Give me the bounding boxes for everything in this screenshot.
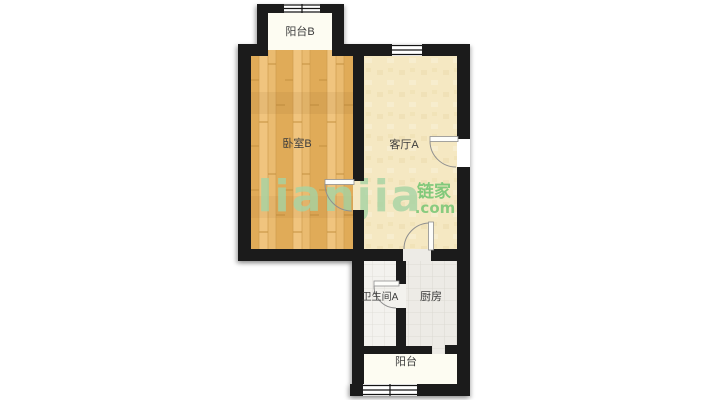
door-leaf bbox=[374, 281, 399, 286]
window-living-a bbox=[392, 44, 422, 56]
wall-segment bbox=[457, 167, 470, 396]
kitchen-floor bbox=[406, 261, 457, 354]
bathroom-a-floor bbox=[364, 261, 396, 346]
watermark-brand-text: lianjia bbox=[257, 171, 422, 222]
door-leaf bbox=[429, 222, 434, 250]
wall-segment bbox=[350, 384, 363, 396]
wall-segment bbox=[238, 44, 251, 261]
floorplan-canvas: lianjia 链家 .com bbox=[0, 0, 710, 400]
doorway-entry bbox=[457, 139, 470, 167]
bedroom-floor-shade bbox=[251, 92, 353, 114]
door-leaf bbox=[430, 137, 458, 142]
room-label-living-a: 客厅A bbox=[389, 137, 419, 151]
window-balcony-b bbox=[284, 4, 320, 13]
floorplan-svg: lianjia 链家 .com bbox=[0, 0, 710, 400]
room-label-bedroom-b: 卧室B bbox=[282, 136, 311, 150]
room-label-kitchen: 厨房 bbox=[420, 290, 442, 303]
window-balcony bbox=[363, 384, 417, 396]
wall-segment bbox=[257, 4, 284, 13]
wall-segment bbox=[422, 44, 458, 56]
door-leaf bbox=[325, 180, 354, 185]
wall-segment bbox=[352, 249, 364, 396]
wall-segment bbox=[320, 4, 344, 13]
wall-segment bbox=[445, 345, 457, 354]
watermark-tld-text: .com bbox=[415, 199, 456, 217]
room-label-balcony: 阳台 bbox=[395, 354, 417, 368]
wall-segment bbox=[431, 249, 470, 261]
wall-segment bbox=[457, 44, 470, 139]
wall-segment bbox=[238, 249, 403, 261]
room-label-bathroom-a: 卫生间A bbox=[362, 290, 399, 303]
floorplan: lianjia 链家 .com bbox=[238, 4, 470, 396]
wall-segment bbox=[396, 308, 406, 346]
wall-segment bbox=[353, 44, 364, 181]
wall-segment bbox=[396, 261, 406, 284]
room-label-balcony-b: 阳台B bbox=[285, 24, 314, 38]
wall-segment bbox=[352, 346, 432, 354]
wall-segment bbox=[417, 384, 470, 396]
doorway-living-kitchen bbox=[403, 249, 431, 261]
